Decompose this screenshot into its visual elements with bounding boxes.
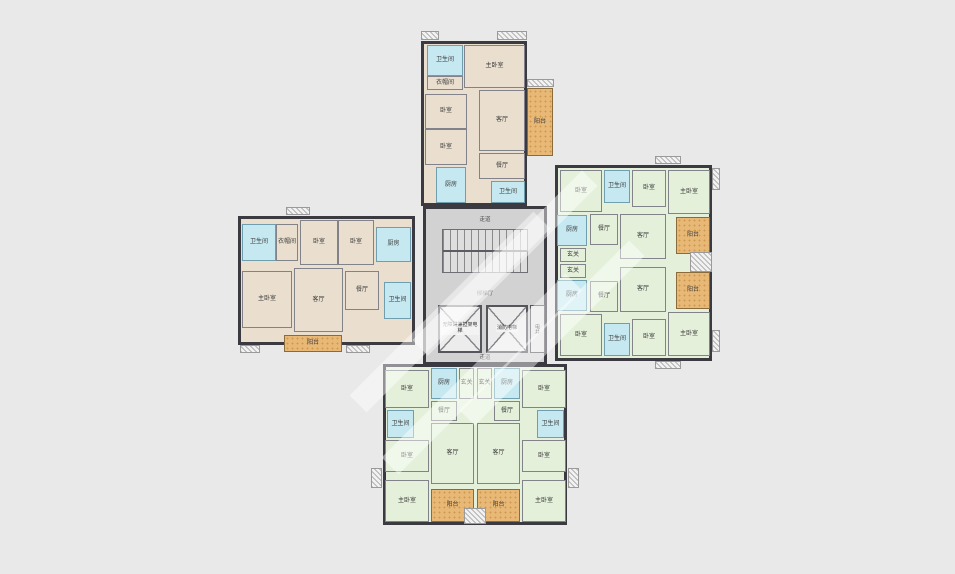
room-right-up-bedroom-2: 卧室 bbox=[632, 170, 666, 207]
room-label: 卧室 bbox=[440, 108, 452, 115]
room-label: 玄关 bbox=[567, 268, 579, 275]
accessible-elevator: 无障碍兼担架电梯 bbox=[438, 305, 482, 353]
fire-elevator-label: 消防电梯 bbox=[496, 326, 518, 332]
room-top-living: 客厅 bbox=[479, 90, 525, 151]
room-right-up-master-bedroom: 主卧室 bbox=[668, 170, 710, 214]
room-label: 厨房 bbox=[445, 182, 457, 189]
building-core: 走道 候梯厅 无障碍兼担架电梯 消防电梯 电井 走道 bbox=[423, 206, 547, 365]
room-right-low-balcony: 阳台 bbox=[676, 272, 710, 309]
room-label: 阳台 bbox=[492, 502, 504, 509]
room-label: 客厅 bbox=[492, 450, 504, 457]
room-left-kitchen: 厨房 bbox=[376, 227, 411, 262]
ac-platform-2 bbox=[497, 31, 527, 40]
room-label: 玄关 bbox=[460, 380, 472, 387]
room-right-low-foyer: 玄关 bbox=[560, 264, 586, 278]
accessible-elevator-label: 无障碍兼担架电梯 bbox=[441, 323, 480, 335]
room-label: 主卧室 bbox=[535, 498, 553, 505]
ac-platform-5 bbox=[240, 345, 260, 353]
room-label: 客厅 bbox=[312, 297, 324, 304]
room-label: 卧室 bbox=[350, 239, 362, 246]
room-label: 阳台 bbox=[534, 119, 546, 126]
room-label: 阳台 bbox=[687, 232, 699, 239]
room-label: 卧室 bbox=[401, 386, 413, 393]
room-bottom-right-bedroom-2: 卧室 bbox=[522, 440, 566, 472]
room-right-up-bath: 卫生间 bbox=[604, 170, 630, 203]
room-bottom-left-living: 客厅 bbox=[431, 423, 474, 484]
room-label: 主卧室 bbox=[485, 63, 503, 70]
room-bottom-right-bedroom-1: 卧室 bbox=[522, 370, 566, 408]
room-right-low-bedroom-2: 卧室 bbox=[632, 319, 666, 356]
room-top-balcony: 阳台 bbox=[527, 88, 553, 156]
room-right-up-kitchen: 厨房 bbox=[557, 215, 587, 246]
room-bottom-right-bath: 卫生间 bbox=[537, 410, 564, 438]
room-label: 卧室 bbox=[538, 386, 550, 393]
ac-platform-11 bbox=[690, 252, 712, 272]
room-bottom-right-foyer: 玄关 bbox=[477, 368, 492, 399]
room-top-master-bedroom: 主卧室 bbox=[464, 45, 525, 88]
room-label: 卫生间 bbox=[250, 239, 268, 246]
elevator-hall-label: 候梯厅 bbox=[426, 289, 544, 297]
ac-platform-1 bbox=[421, 31, 439, 40]
room-label: 客厅 bbox=[446, 450, 458, 457]
ac-platform-12 bbox=[371, 468, 382, 488]
room-label: 玄关 bbox=[567, 252, 579, 259]
room-label: 厨房 bbox=[438, 380, 450, 387]
room-bottom-right-kitchen: 厨房 bbox=[494, 368, 520, 399]
room-label: 厨房 bbox=[501, 380, 513, 387]
room-right-up-dining: 餐厅 bbox=[590, 214, 618, 245]
room-top-bath: 卫生间 bbox=[427, 45, 463, 76]
room-right-low-bedroom-1: 卧室 bbox=[560, 314, 602, 356]
ac-platform-8 bbox=[712, 168, 720, 190]
room-right-up-living: 客厅 bbox=[620, 214, 666, 259]
room-top-kitchen: 厨房 bbox=[436, 167, 466, 203]
room-left-bedroom-1: 卧室 bbox=[300, 220, 338, 265]
room-bottom-left-dining: 餐厅 bbox=[431, 401, 457, 421]
ac-platform-4 bbox=[286, 207, 310, 215]
room-label: 主卧室 bbox=[258, 296, 276, 303]
room-label: 衣帽间 bbox=[278, 239, 296, 246]
room-right-up-bedroom-1: 卧室 bbox=[560, 170, 602, 212]
room-left-living: 客厅 bbox=[294, 268, 343, 332]
room-bottom-left-bath: 卫生间 bbox=[387, 410, 414, 438]
corridor-bottom-label: 走道 bbox=[426, 353, 544, 361]
room-label: 阳台 bbox=[446, 502, 458, 509]
room-label: 卧室 bbox=[538, 453, 550, 460]
room-top-bath-2: 卫生间 bbox=[491, 181, 525, 203]
room-label: 卫生间 bbox=[388, 297, 406, 304]
room-label: 餐厅 bbox=[501, 408, 513, 415]
room-bottom-left-master-bedroom: 主卧室 bbox=[385, 480, 429, 522]
room-label: 厨房 bbox=[566, 292, 578, 299]
staircase bbox=[442, 229, 528, 273]
room-label: 阳台 bbox=[687, 287, 699, 294]
room-bottom-right-master-bedroom: 主卧室 bbox=[522, 480, 566, 522]
ac-platform-9 bbox=[655, 361, 681, 369]
room-label: 卫生间 bbox=[499, 189, 517, 196]
room-label: 卫生间 bbox=[541, 421, 559, 428]
room-label: 主卧室 bbox=[680, 189, 698, 196]
room-label: 餐厅 bbox=[598, 293, 610, 300]
room-label: 卫生间 bbox=[608, 183, 626, 190]
room-top-bedroom-2: 卧室 bbox=[425, 129, 467, 165]
ac-platform-3 bbox=[527, 79, 554, 87]
ac-platform-13 bbox=[568, 468, 579, 488]
room-left-closet: 衣帽间 bbox=[276, 224, 298, 261]
floor-plan-canvas: 卫生间衣帽间主卧室卧室卧室客厅餐厅厨房卫生间阳台卫生间衣帽间卧室卧室厨房主卧室客… bbox=[0, 0, 955, 574]
room-label: 餐厅 bbox=[496, 163, 508, 170]
room-label: 厨房 bbox=[566, 227, 578, 234]
room-label: 玄关 bbox=[478, 380, 490, 387]
room-label: 卫生间 bbox=[391, 421, 409, 428]
room-label: 卧室 bbox=[575, 188, 587, 195]
room-label: 卧室 bbox=[401, 453, 413, 460]
room-bottom-right-dining: 餐厅 bbox=[494, 401, 520, 421]
room-label: 卧室 bbox=[575, 332, 587, 339]
fire-elevator: 消防电梯 bbox=[486, 305, 528, 353]
room-label: 厨房 bbox=[387, 241, 399, 248]
room-label: 餐厅 bbox=[598, 226, 610, 233]
room-label: 衣帽间 bbox=[436, 80, 454, 87]
room-label: 主卧室 bbox=[680, 331, 698, 338]
room-label: 卧室 bbox=[643, 185, 655, 192]
room-right-low-kitchen: 厨房 bbox=[557, 280, 587, 311]
room-label: 阳台 bbox=[307, 340, 319, 347]
room-bottom-right-living: 客厅 bbox=[477, 423, 520, 484]
room-label: 卫生间 bbox=[436, 57, 454, 64]
room-label: 主卧室 bbox=[398, 498, 416, 505]
room-right-up-balcony: 阳台 bbox=[676, 217, 710, 254]
room-left-dining: 餐厅 bbox=[345, 271, 379, 310]
room-right-low-living: 客厅 bbox=[620, 267, 666, 312]
room-left-bath-2: 卫生间 bbox=[384, 282, 411, 319]
utility-shaft-label: 电井 bbox=[534, 324, 541, 334]
room-bottom-left-kitchen: 厨房 bbox=[431, 368, 457, 399]
room-bottom-left-foyer: 玄关 bbox=[459, 368, 474, 399]
room-bottom-left-bedroom-2: 卧室 bbox=[385, 440, 429, 472]
room-top-closet: 衣帽间 bbox=[427, 76, 463, 90]
corridor-top-label: 走道 bbox=[426, 215, 544, 223]
room-label: 卧室 bbox=[313, 239, 325, 246]
utility-shaft: 电井 bbox=[530, 305, 545, 353]
room-right-low-dining: 餐厅 bbox=[590, 281, 618, 312]
room-label: 卫生间 bbox=[608, 336, 626, 343]
room-label: 客厅 bbox=[496, 117, 508, 124]
room-label: 客厅 bbox=[637, 233, 649, 240]
room-bottom-left-bedroom-1: 卧室 bbox=[385, 370, 429, 408]
room-top-dining: 餐厅 bbox=[479, 153, 525, 179]
room-right-up-foyer: 玄关 bbox=[560, 248, 586, 262]
ac-platform-7 bbox=[655, 156, 681, 164]
ac-platform-14 bbox=[464, 508, 486, 524]
room-label: 卧室 bbox=[643, 334, 655, 341]
room-label: 餐厅 bbox=[356, 287, 368, 294]
room-left-bath: 卫生间 bbox=[242, 224, 276, 261]
room-left-balcony: 阳台 bbox=[284, 335, 342, 352]
room-left-master-bedroom: 主卧室 bbox=[242, 271, 292, 328]
stair-landing-divider bbox=[443, 250, 527, 252]
room-label: 卧室 bbox=[440, 144, 452, 151]
room-right-low-bath: 卫生间 bbox=[604, 323, 630, 356]
ac-platform-10 bbox=[712, 330, 720, 352]
room-label: 客厅 bbox=[637, 286, 649, 293]
room-right-low-master-bedroom: 主卧室 bbox=[668, 312, 710, 356]
room-label: 餐厅 bbox=[438, 408, 450, 415]
ac-platform-6 bbox=[346, 345, 370, 353]
room-left-bedroom-2: 卧室 bbox=[338, 220, 374, 265]
room-top-bedroom-1: 卧室 bbox=[425, 94, 467, 129]
